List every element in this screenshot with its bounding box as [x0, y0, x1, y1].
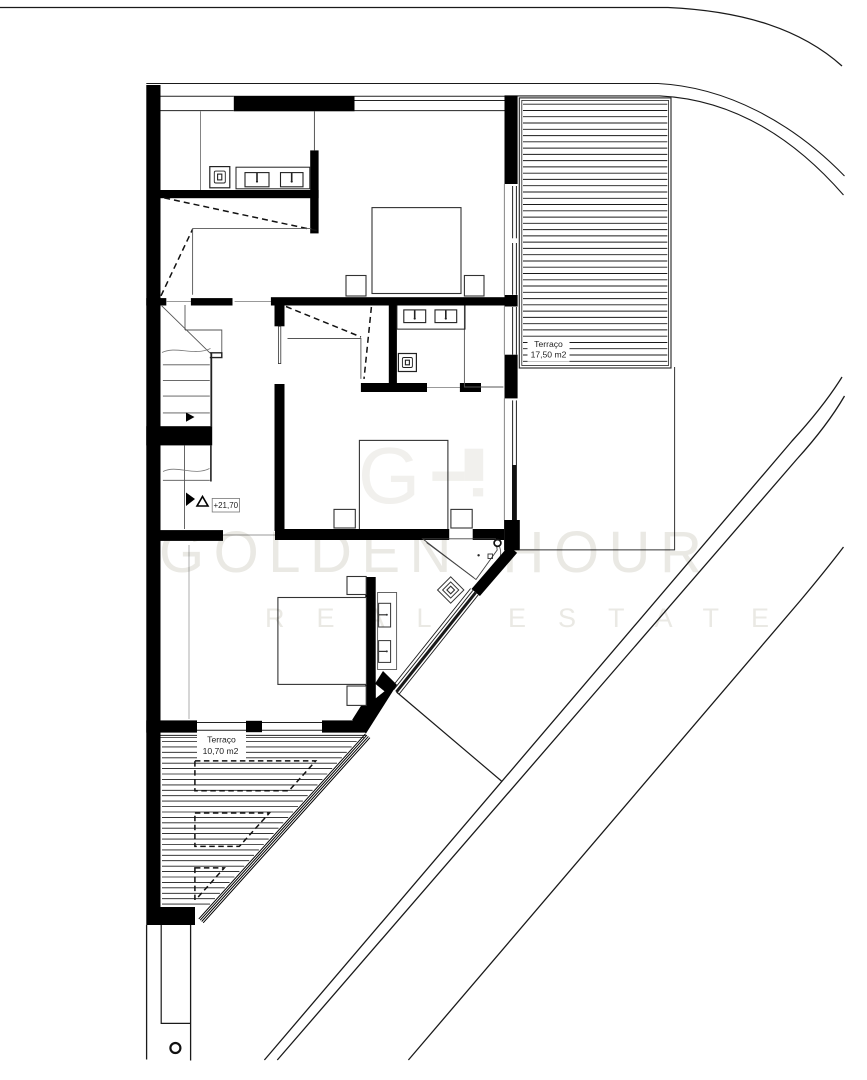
- svg-text:REAL ESTATE: REAL ESTATE: [265, 603, 801, 633]
- svg-text:+21,70: +21,70: [213, 501, 238, 510]
- svg-text:G: G: [358, 431, 420, 520]
- svg-text:10,70 m2: 10,70 m2: [203, 746, 239, 756]
- svg-text:17,50 m2: 17,50 m2: [531, 350, 567, 360]
- svg-text:Terraço: Terraço: [534, 339, 563, 349]
- svg-text:Terraço: Terraço: [207, 735, 236, 745]
- svg-text:GOLDEN HOUR: GOLDEN HOUR: [159, 520, 711, 585]
